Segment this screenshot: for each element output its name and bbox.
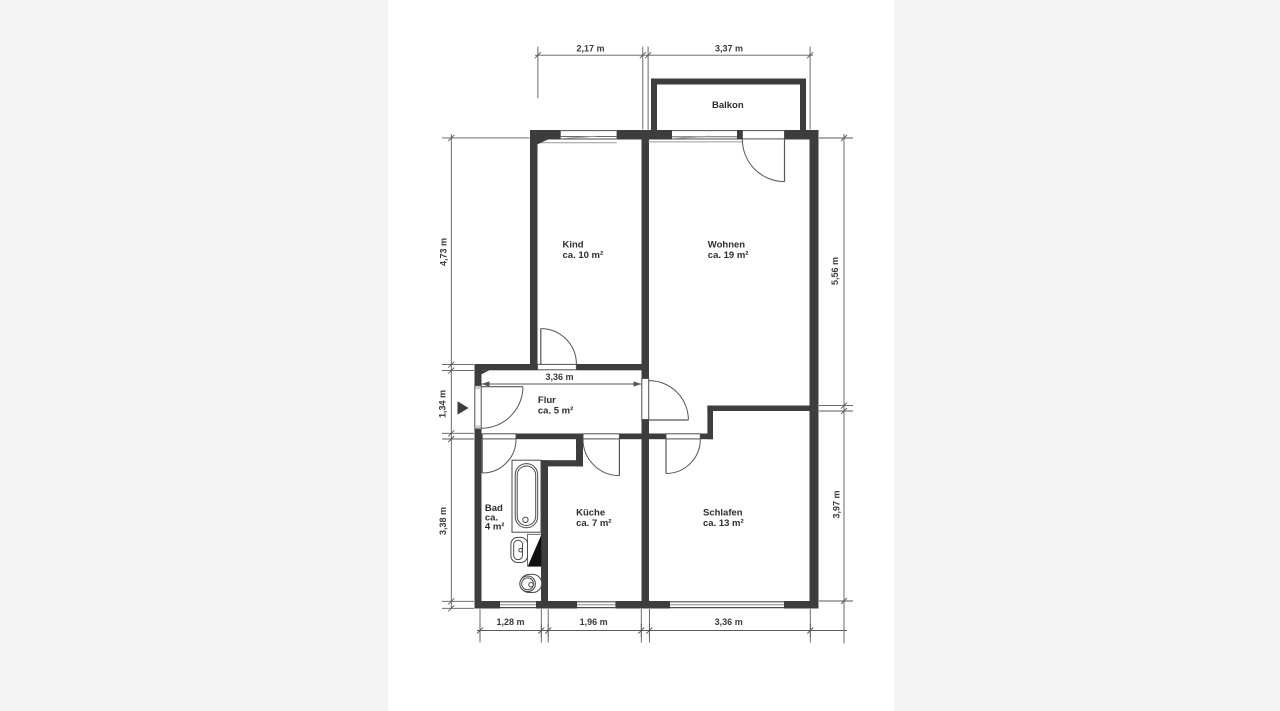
svg-text:Kind: Kind <box>563 240 584 251</box>
svg-text:2,17 m: 2,17 m <box>576 44 604 54</box>
svg-text:1,96 m: 1,96 m <box>580 617 608 627</box>
svg-text:ca. 5 m²: ca. 5 m² <box>538 406 573 417</box>
svg-text:3,38 m: 3,38 m <box>438 507 448 535</box>
svg-text:1,28 m: 1,28 m <box>496 617 524 627</box>
svg-text:3,37 m: 3,37 m <box>715 44 743 54</box>
svg-text:Flur: Flur <box>538 395 556 406</box>
svg-text:Schlafen: Schlafen <box>703 508 743 519</box>
svg-text:3,36 m: 3,36 m <box>545 372 573 382</box>
svg-text:Küche: Küche <box>576 508 605 519</box>
svg-text:5,56 m: 5,56 m <box>830 257 840 285</box>
svg-text:3,36 m: 3,36 m <box>715 617 743 627</box>
svg-text:1,34 m: 1,34 m <box>438 390 448 418</box>
svg-text:4 m²: 4 m² <box>485 522 505 533</box>
svg-text:ca. 19 m²: ca. 19 m² <box>708 250 749 261</box>
svg-text:Balkon: Balkon <box>712 100 744 111</box>
svg-text:Wohnen: Wohnen <box>708 240 745 251</box>
svg-text:ca. 7 m²: ca. 7 m² <box>576 518 611 529</box>
svg-text:3,97 m: 3,97 m <box>832 490 842 518</box>
svg-text:ca. 13 m²: ca. 13 m² <box>703 518 744 529</box>
svg-text:4,73 m: 4,73 m <box>439 238 449 266</box>
svg-text:ca. 10 m²: ca. 10 m² <box>563 250 604 261</box>
